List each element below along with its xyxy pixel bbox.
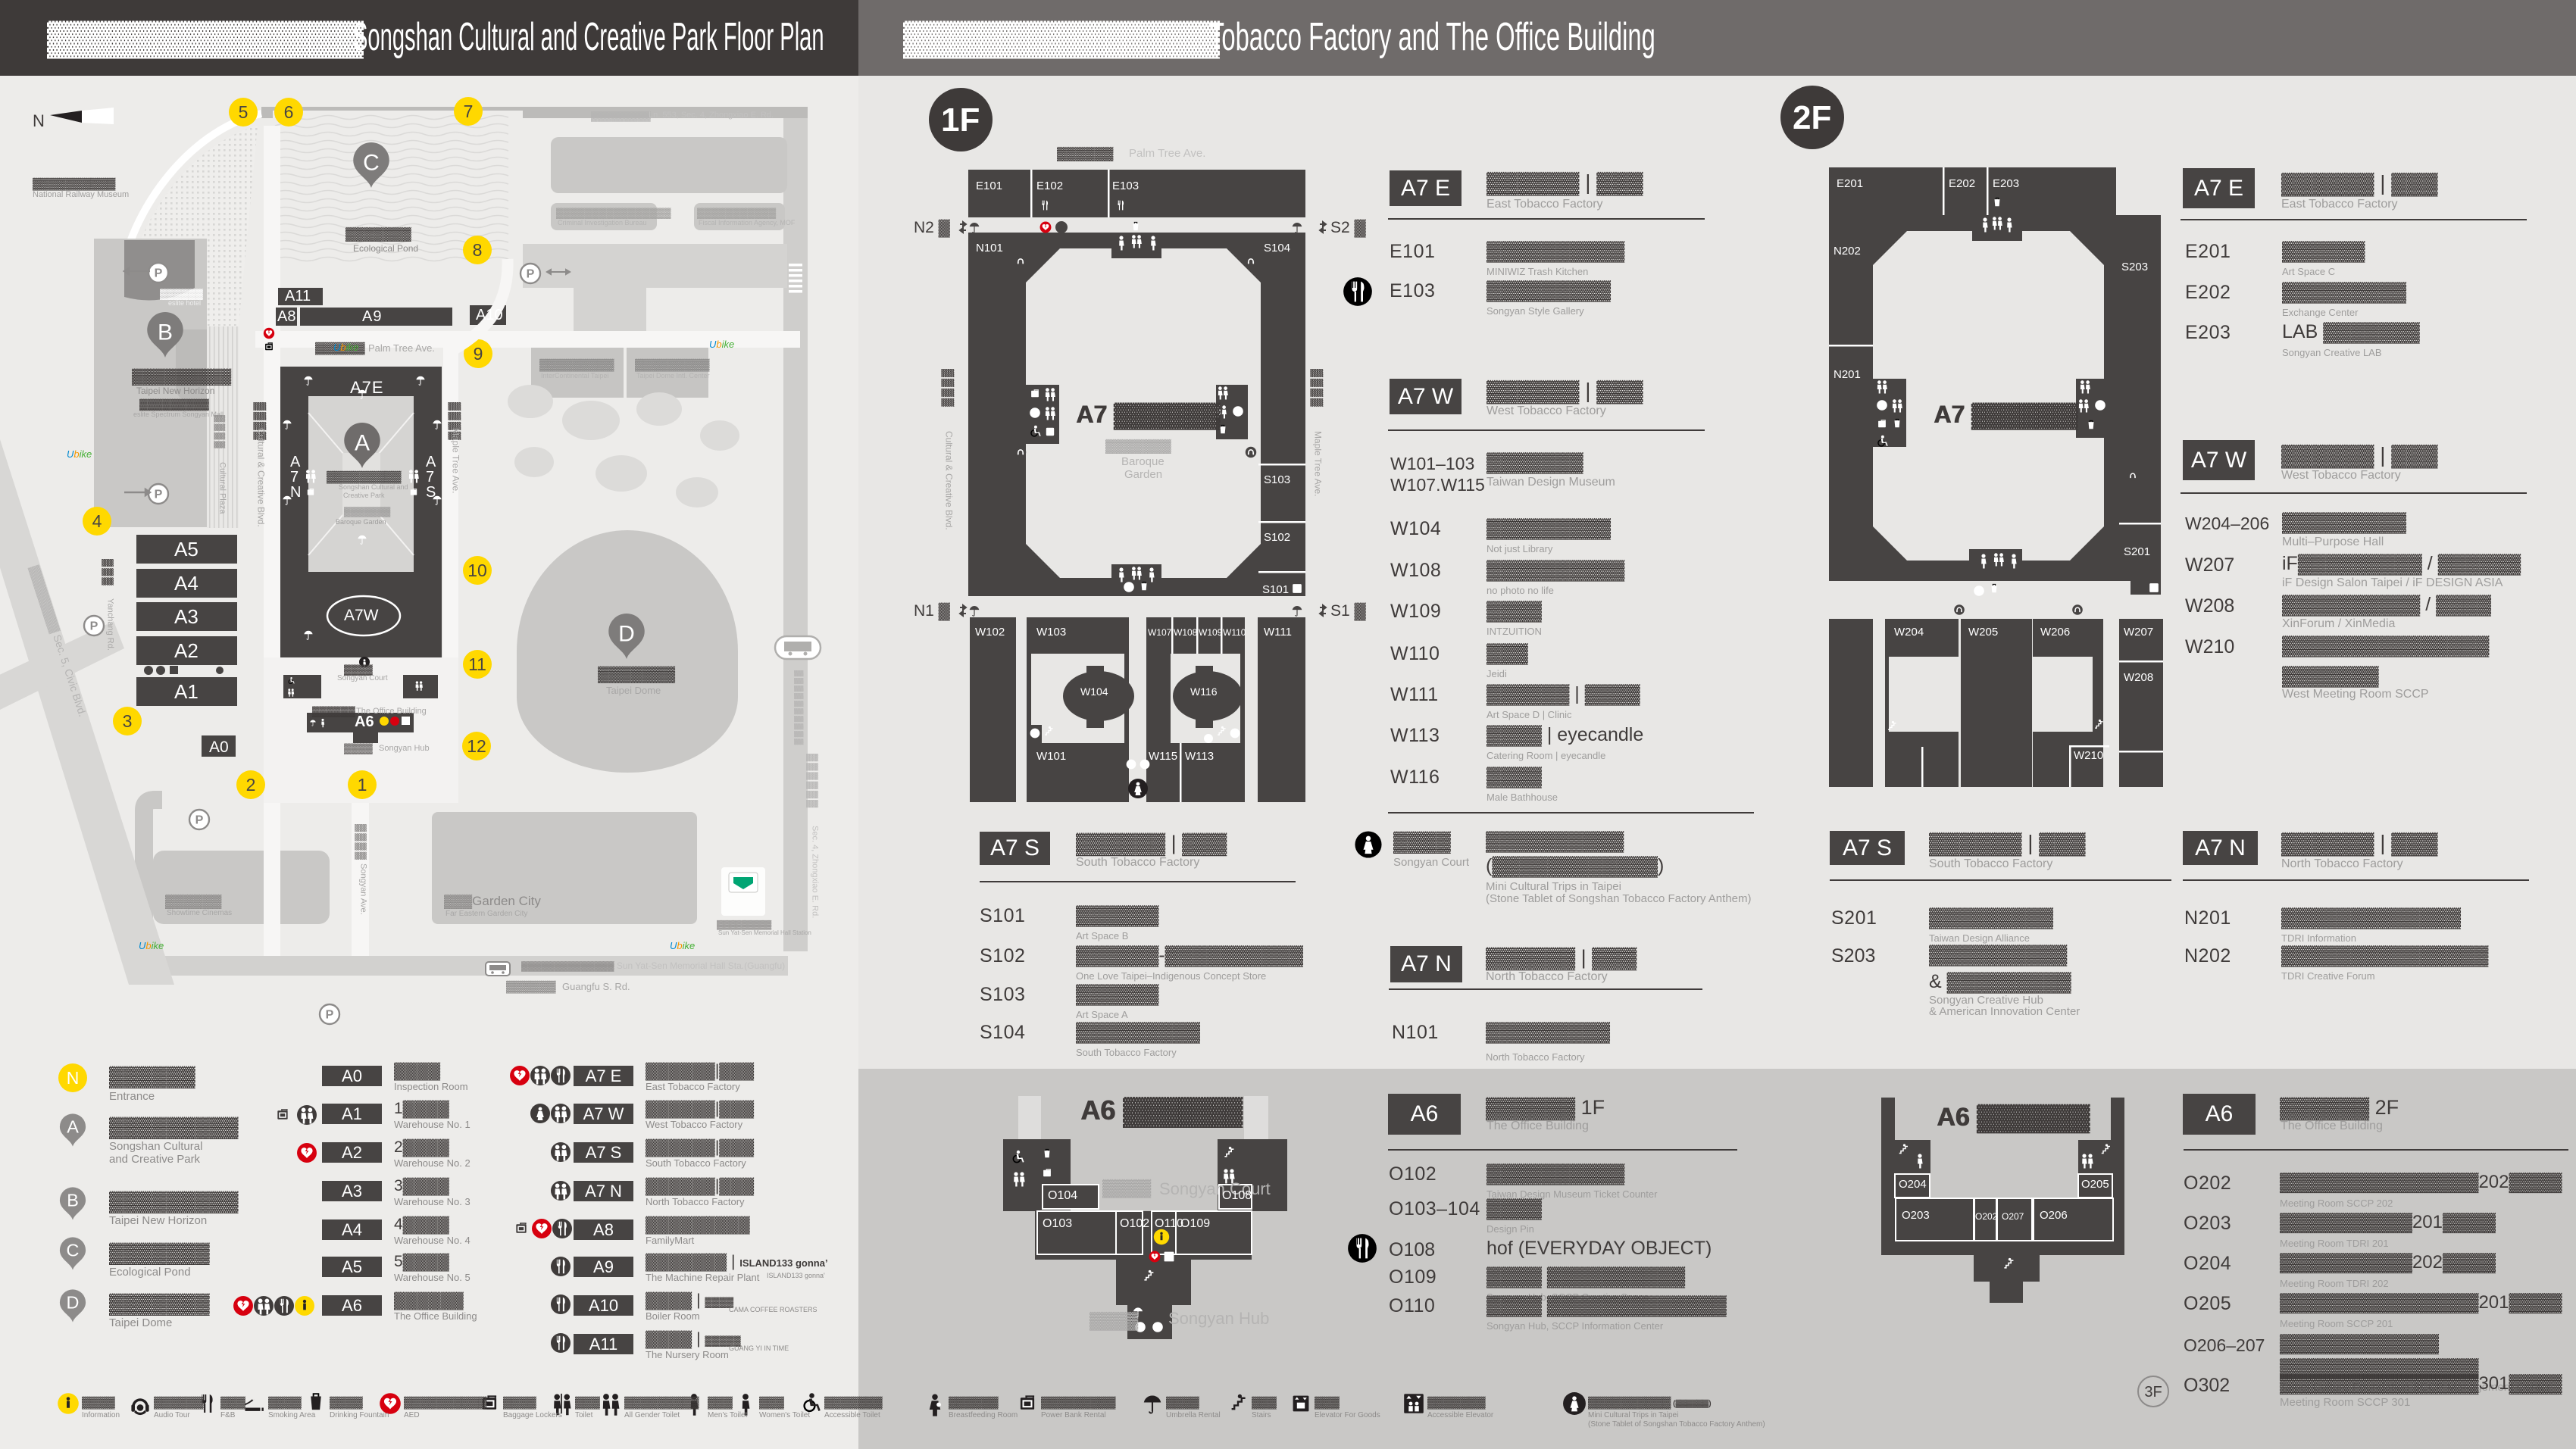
svg-text:2: 2 (246, 775, 256, 795)
svg-text:B: B (158, 320, 173, 345)
svg-text:10: 10 (467, 561, 487, 580)
svg-text:N: N (67, 1068, 80, 1088)
svg-text:9: 9 (474, 344, 483, 364)
svg-text:6: 6 (284, 102, 294, 122)
svg-text:4: 4 (92, 511, 102, 531)
svg-text:C: C (67, 1241, 80, 1260)
svg-text:C: C (363, 150, 380, 175)
svg-text:A: A (355, 430, 370, 455)
svg-text:A: A (67, 1117, 79, 1137)
svg-text:B: B (67, 1191, 79, 1210)
svg-text:12: 12 (467, 736, 486, 756)
svg-text:3: 3 (123, 711, 133, 731)
svg-text:8: 8 (473, 240, 483, 260)
svg-text:11: 11 (468, 654, 486, 674)
svg-text:5: 5 (239, 102, 249, 122)
svg-text:7: 7 (464, 101, 474, 121)
svg-text:3F: 3F (2144, 1384, 2162, 1401)
svg-text:D: D (618, 621, 635, 646)
svg-text:1: 1 (358, 775, 367, 795)
svg-text:D: D (67, 1293, 80, 1313)
